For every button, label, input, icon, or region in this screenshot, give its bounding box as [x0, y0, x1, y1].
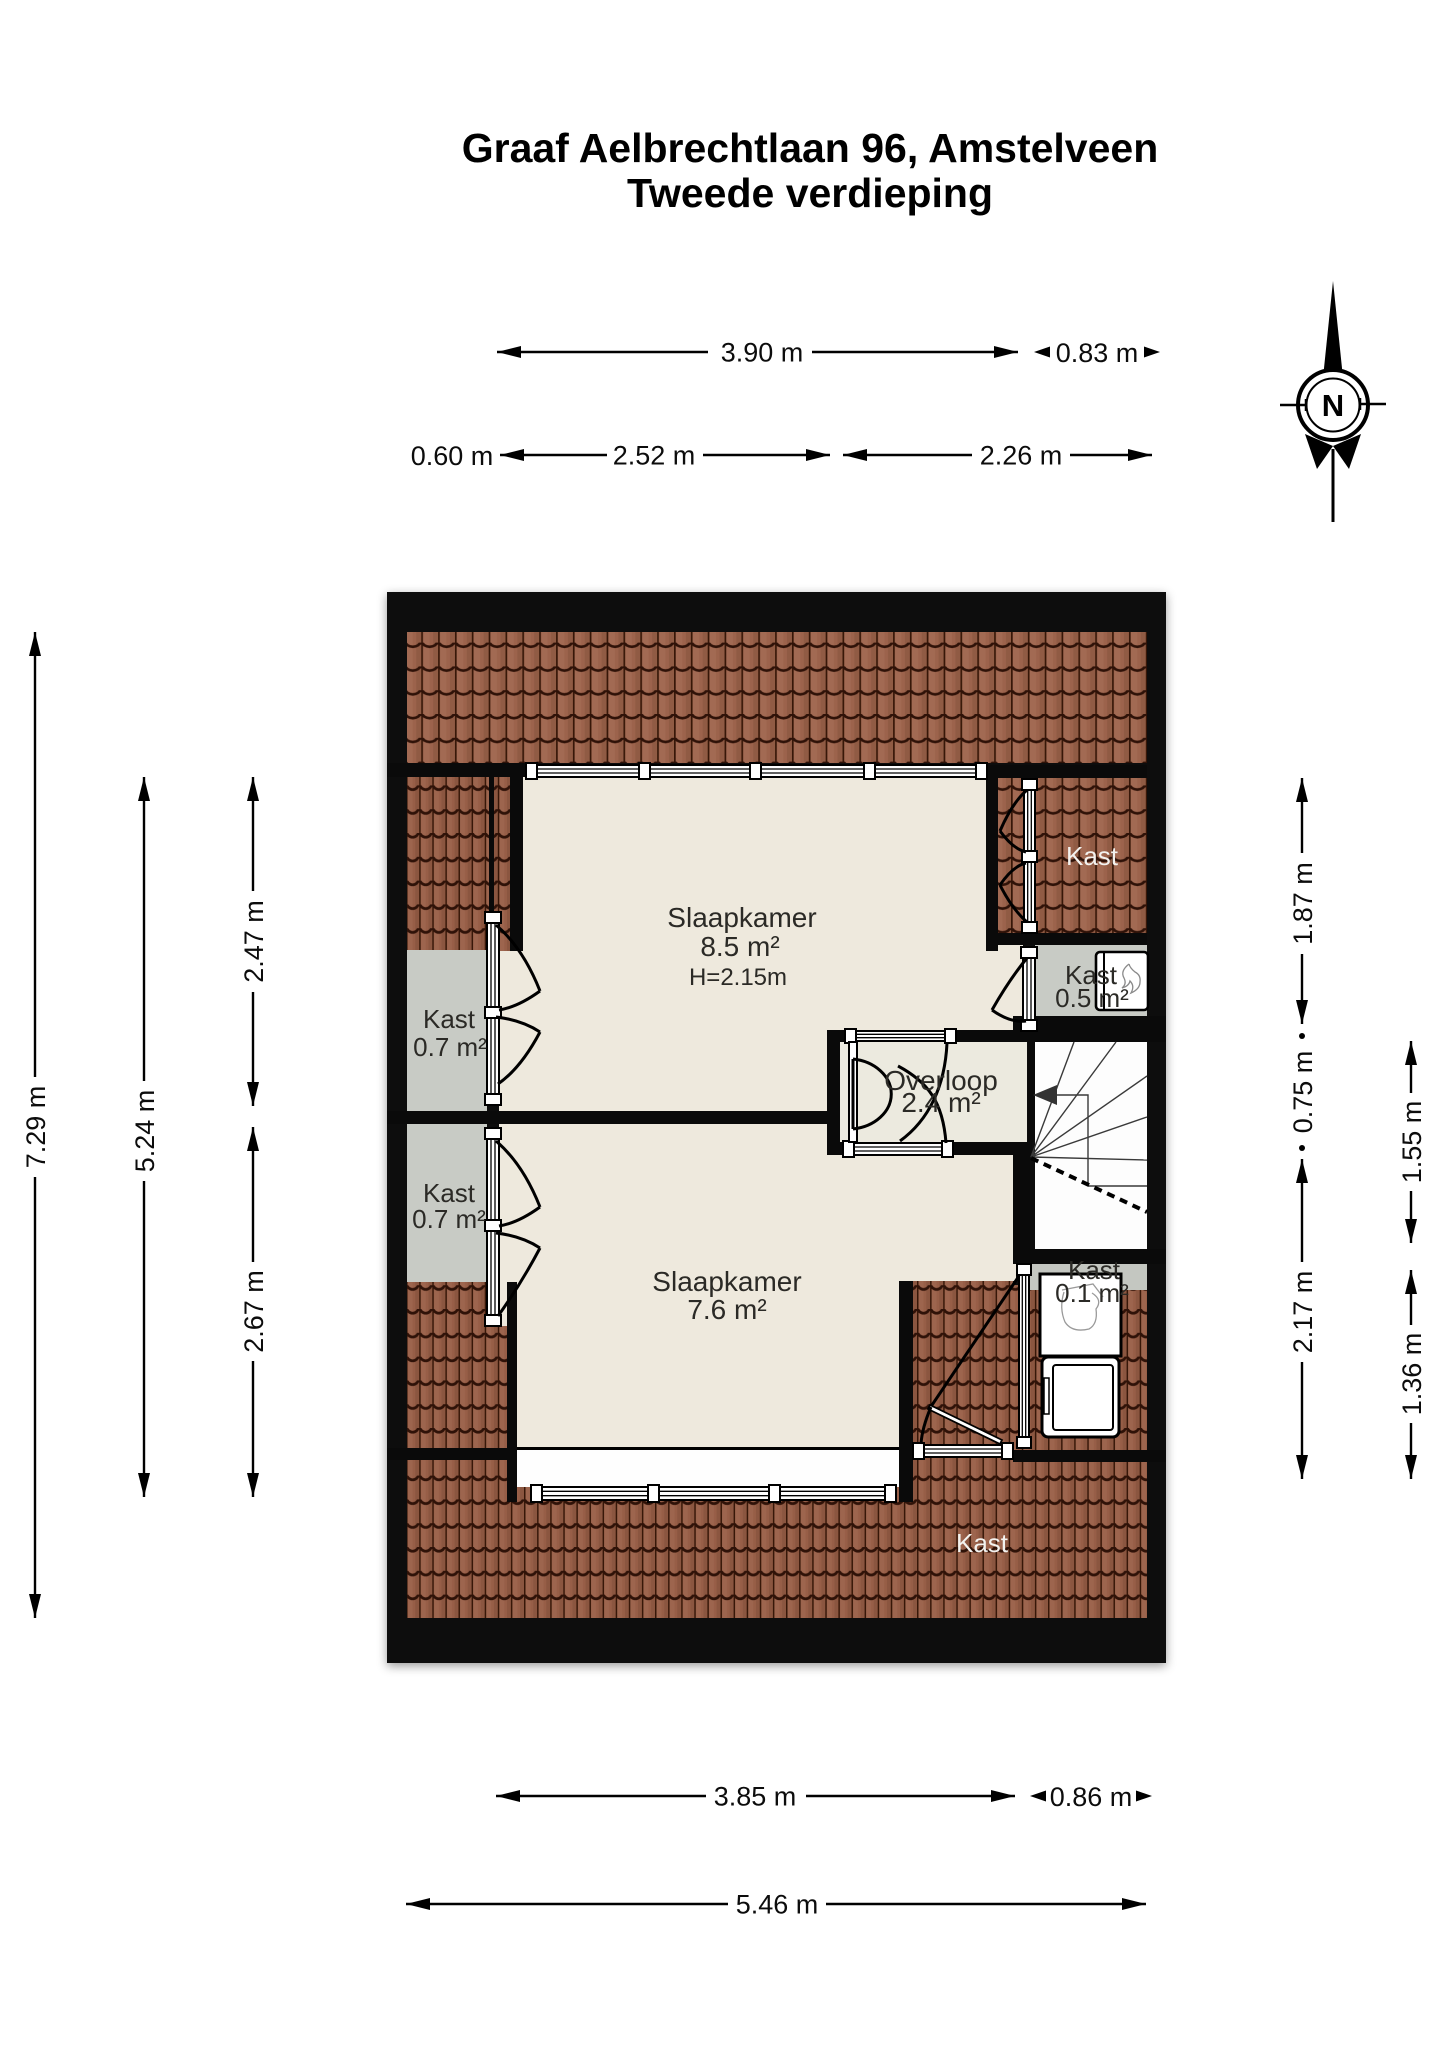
svg-text:2.26 m: 2.26 m [980, 441, 1063, 471]
svg-text:2.4 m²: 2.4 m² [901, 1087, 980, 1118]
svg-text:Tweede verdieping: Tweede verdieping [627, 170, 993, 216]
svg-text:0.7 m²: 0.7 m² [412, 1204, 486, 1234]
svg-text:2.67 m: 2.67 m [239, 1270, 269, 1353]
svg-text:7.6 m²: 7.6 m² [687, 1294, 766, 1325]
svg-text:0.5 m²: 0.5 m² [1055, 983, 1129, 1013]
svg-text:1.36 m: 1.36 m [1397, 1333, 1427, 1416]
svg-text:Kast: Kast [1066, 841, 1119, 871]
svg-text:5.46 m: 5.46 m [736, 1890, 819, 1920]
svg-text:2.52 m: 2.52 m [613, 441, 696, 471]
svg-text:0.75 m: 0.75 m [1288, 1051, 1318, 1134]
svg-text:Kast: Kast [956, 1528, 1009, 1558]
svg-text:N: N [1322, 388, 1344, 423]
svg-text:0.83 m: 0.83 m [1056, 338, 1139, 368]
svg-text:3.85 m: 3.85 m [714, 1782, 797, 1812]
svg-text:2.47 m: 2.47 m [239, 900, 269, 983]
svg-text:1.87 m: 1.87 m [1288, 862, 1318, 945]
svg-text:0.60 m: 0.60 m [411, 441, 494, 471]
svg-text:Graaf Aelbrechtlaan 96, Amstel: Graaf Aelbrechtlaan 96, Amstelveen [462, 125, 1159, 171]
svg-text:8.5 m²: 8.5 m² [700, 931, 779, 962]
svg-text:Slaapkamer: Slaapkamer [667, 902, 816, 933]
svg-text:H=2.15m: H=2.15m [689, 964, 787, 991]
svg-text:Kast: Kast [423, 1004, 476, 1034]
svg-text:3.90 m: 3.90 m [721, 338, 804, 368]
svg-text:1.55 m: 1.55 m [1397, 1101, 1427, 1184]
svg-text:5.24 m: 5.24 m [130, 1090, 160, 1173]
svg-text:0.1 m²: 0.1 m² [1055, 1278, 1129, 1308]
svg-text:0.86 m: 0.86 m [1050, 1782, 1133, 1812]
svg-text:7.29 m: 7.29 m [21, 1086, 51, 1169]
svg-text:Slaapkamer: Slaapkamer [652, 1266, 801, 1297]
svg-text:0.7 m²: 0.7 m² [413, 1032, 487, 1062]
svg-text:2.17 m: 2.17 m [1288, 1271, 1318, 1354]
